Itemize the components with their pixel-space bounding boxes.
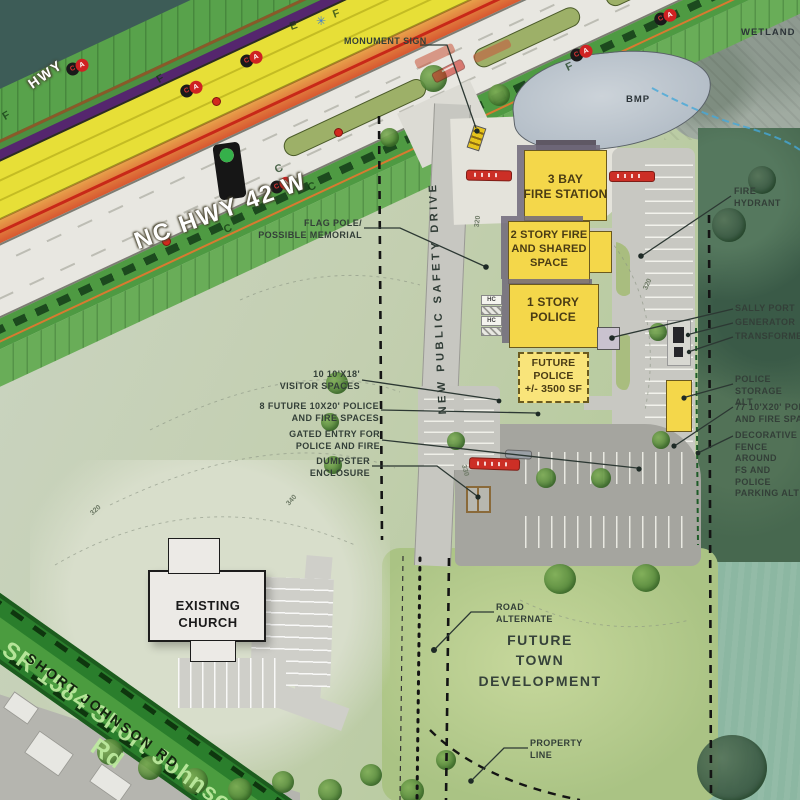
label-generator: GENERATOR — [735, 317, 795, 329]
label-77-spaces: 77 10'X20' POLICE AND FIRE SPACES — [735, 402, 800, 425]
label-monument-sign: MONUMENT SIGN — [344, 36, 427, 48]
future-town-label: FUTURE TOWN DEVELOPMENT — [452, 630, 628, 691]
wetland-label: WETLAND — [741, 27, 796, 39]
label-dumpster: DUMPSTER ENCLOSURE — [282, 456, 370, 479]
label-property-line: PROPERTY LINE — [530, 738, 583, 761]
label-future-spaces: 8 FUTURE 10X20' POLICE AND FIRE SPACES — [255, 401, 379, 424]
label-visitor-spaces: 10 10'X18' VISITOR SPACES — [258, 369, 360, 392]
label-gated-entry: GATED ENTRY FOR POLICE AND FIRE — [270, 429, 380, 452]
label-sally-port: SALLY PORT — [735, 303, 795, 315]
label-fire-hydrant: FIRE HYDRANT — [734, 186, 781, 209]
label-flag-pole: FLAG POLE/ POSSIBLE MEMORIAL — [250, 218, 362, 241]
site-plan: EXISTING CHURCH — [0, 0, 800, 800]
label-transformer: TRANSFORMER — [735, 331, 800, 343]
label-road-alternate: ROAD ALTERNATE — [496, 602, 553, 625]
bmp-label: BMP — [626, 94, 650, 106]
label-decorative-fence: DECORATIVE FENCE AROUND FS AND POLICE PA… — [735, 430, 800, 500]
leader-lines-layer — [0, 0, 800, 800]
